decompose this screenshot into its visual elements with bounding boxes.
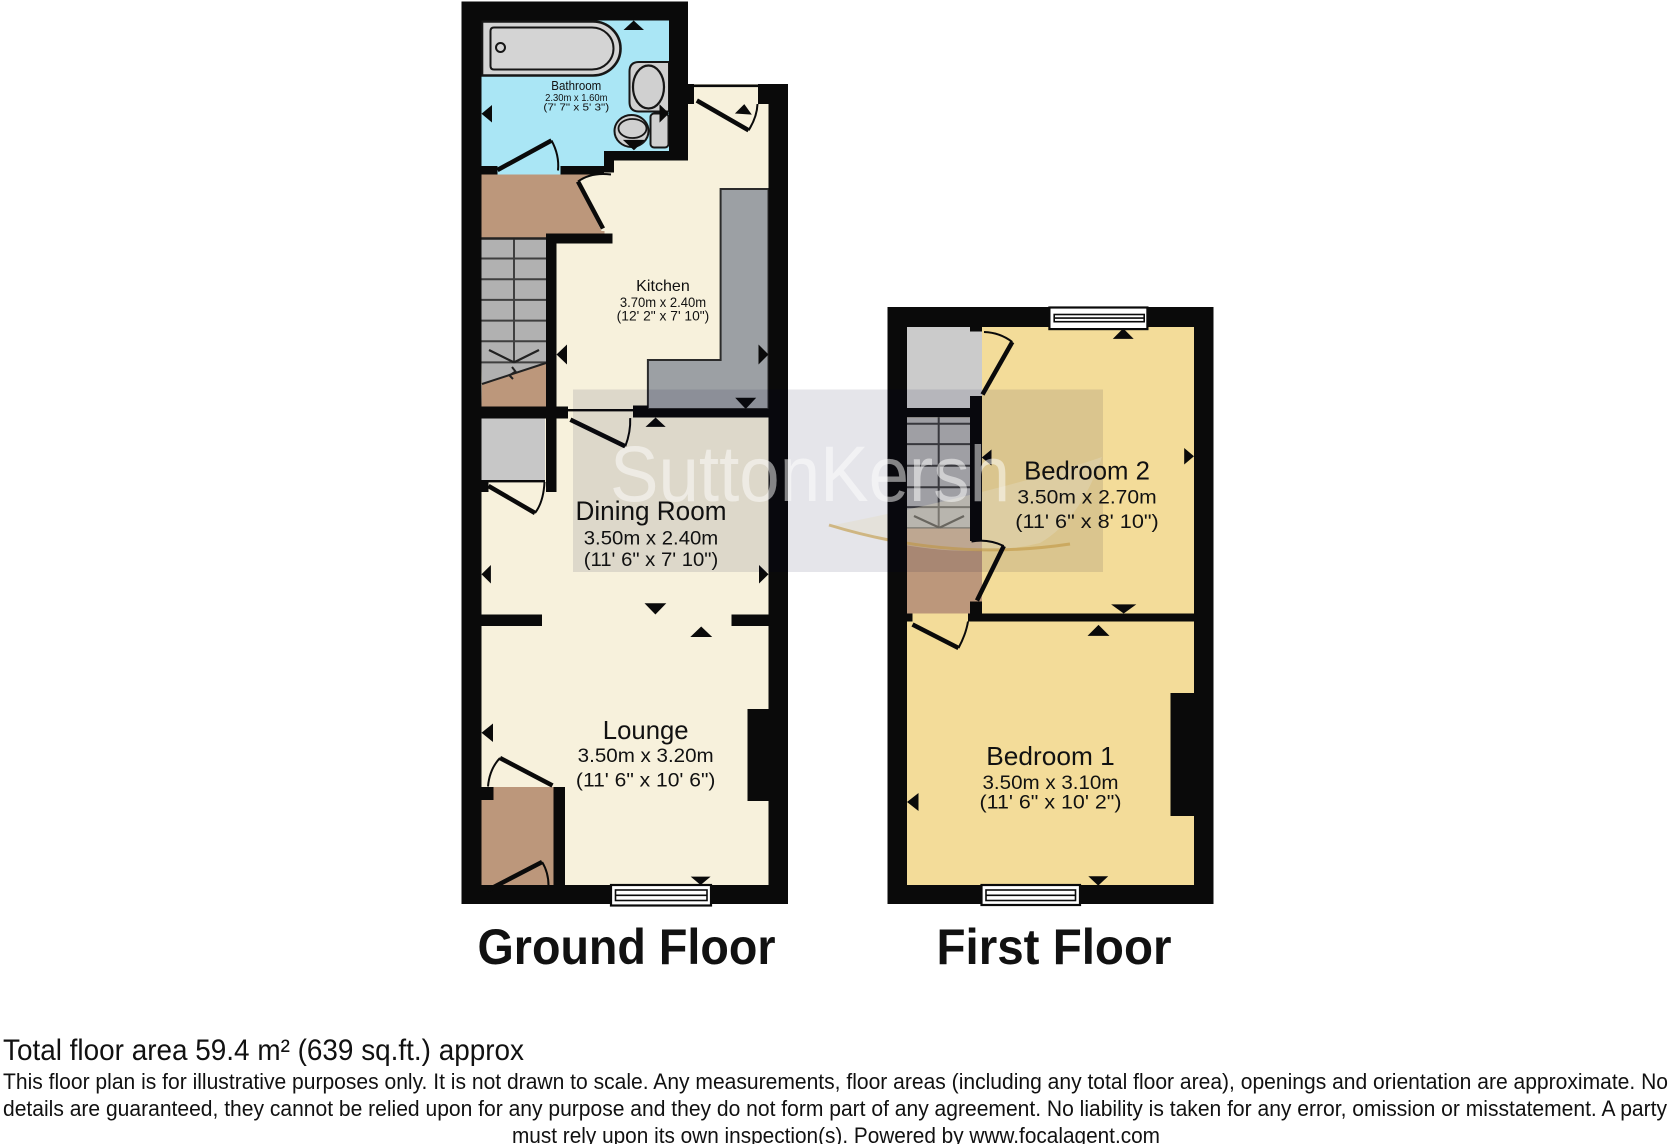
svg-text:(11' 6" x 10' 6"): (11' 6" x 10' 6") xyxy=(576,770,716,792)
svg-text:First Floor: First Floor xyxy=(937,919,1172,975)
svg-text:3.50m x 3.20m: 3.50m x 3.20m xyxy=(578,745,714,767)
svg-text:Lounge: Lounge xyxy=(603,715,689,745)
svg-text:details are guaranteed, they c: details are guaranteed, they cannot be r… xyxy=(3,1096,1667,1121)
svg-text:3.50m x 2.40m: 3.50m x 2.40m xyxy=(584,528,719,550)
svg-text:(11' 6" x 10' 2"): (11' 6" x 10' 2") xyxy=(980,792,1122,814)
svg-text:Ground Floor: Ground Floor xyxy=(478,919,776,975)
svg-text:(11' 6" x 8' 10"): (11' 6" x 8' 10") xyxy=(1015,511,1159,533)
svg-text:Bathroom: Bathroom xyxy=(551,79,601,93)
svg-text:must rely upon its own inspect: must rely upon its own inspection(s). Po… xyxy=(512,1123,1160,1144)
svg-text:(12' 2" x 7' 10"): (12' 2" x 7' 10") xyxy=(617,309,710,324)
svg-text:Bedroom 2: Bedroom 2 xyxy=(1024,456,1150,486)
svg-text:(7' 7" x 5' 3"): (7' 7" x 5' 3") xyxy=(543,103,609,114)
svg-text:Dining Room: Dining Room xyxy=(576,496,727,526)
svg-text:(11' 6" x 7' 10"): (11' 6" x 7' 10") xyxy=(584,549,719,571)
svg-text:Bedroom 1: Bedroom 1 xyxy=(986,741,1115,771)
svg-text:Total floor area 59.4 m² (639: Total floor area 59.4 m² (639 sq.ft.) ap… xyxy=(3,1034,524,1067)
svg-text:This floor plan is for illustr: This floor plan is for illustrative purp… xyxy=(3,1069,1668,1094)
svg-text:3.50m x 2.70m: 3.50m x 2.70m xyxy=(1017,487,1156,509)
svg-text:Kitchen: Kitchen xyxy=(636,278,690,295)
